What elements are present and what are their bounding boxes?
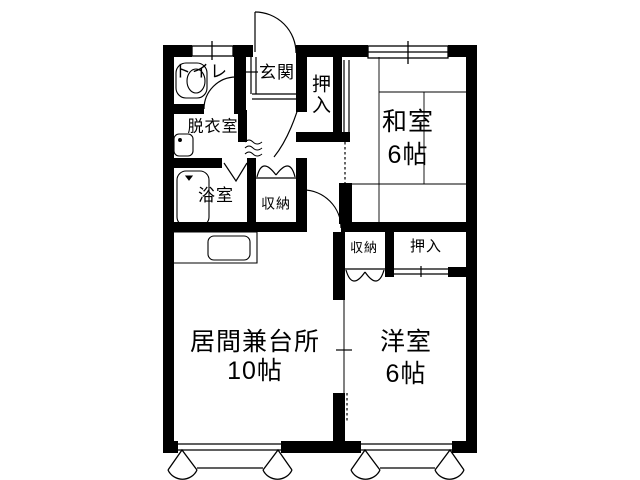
toilet-door [204,77,236,109]
curtain-squiggle [245,140,262,156]
western-room-size: 6帖 [386,361,427,387]
japanese-room-size: 6帖 [388,142,429,168]
closet-top-label: 押入 [309,74,329,116]
mid-storage-doors [345,269,385,281]
kitchen-counter [174,232,257,263]
entrance-door [255,12,296,53]
ldk-floor-window [168,444,292,479]
storage-hall-label: 収納 [261,197,291,212]
mid-closet-fusuma [394,266,448,277]
dressing-room-label: 脱衣室 [187,120,238,137]
entrance-label: 玄関 [259,64,295,82]
bathroom-label: 浴室 [198,187,234,205]
tatami-lines [352,57,466,222]
toilet-window [192,41,233,60]
ldk-door [303,190,341,228]
washbasin [174,134,193,156]
top-closet-fusuma [344,60,349,132]
western-room-label: 洋室 [380,329,432,355]
floor-plan-drawing [0,0,640,480]
tatami-room-window [368,41,448,64]
storage-mid-label: 収納 [350,241,378,255]
living-kitchen-label: 居間兼台所 [190,329,320,355]
floor-plan: トイレ 玄関 押入 脱衣室 浴室 収納 和室 6帖 収納 押入 居間兼台所 10… [0,0,640,480]
western-room-floor-window [351,444,464,479]
toilet-label: トイレ [174,63,228,81]
entrance-step [252,94,296,99]
bath-folding-door [224,163,247,181]
japanese-room-label: 和室 [382,109,434,135]
living-kitchen-size: 10帖 [227,358,283,384]
hall-storage-doors [256,166,296,178]
closet-mid-label: 押入 [410,239,442,255]
entrance-side-partition [244,57,258,94]
